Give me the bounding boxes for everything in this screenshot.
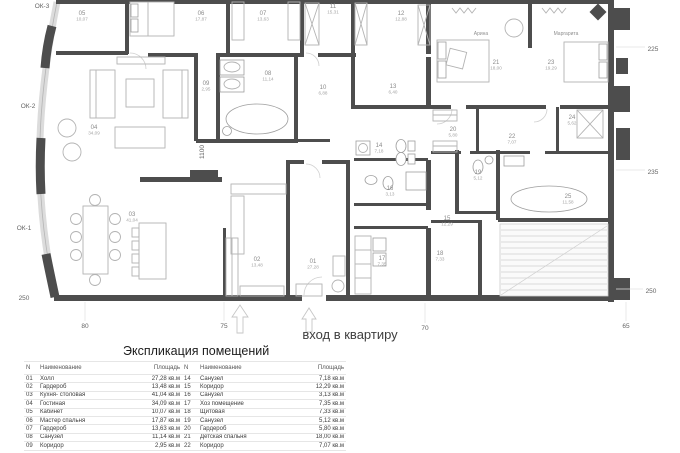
schedule-cell: Гардероб: [38, 383, 126, 391]
schedule-cell: 34,09 кв.м: [126, 400, 182, 408]
room-area-02: 13,48: [251, 263, 263, 268]
table-row: 07Гардероб13,63 кв.м20Гардероб5,80 кв.м: [24, 425, 346, 433]
schedule-cell: Детская спальня: [198, 433, 290, 441]
schedule-cell: 17: [182, 400, 198, 408]
schedule-cell: 2,95 кв.м: [126, 442, 182, 450]
table-row: 09Коридор2,95 кв.м22Коридор7,07 кв.м: [24, 442, 346, 450]
schedule-cell: Мастер спальня: [38, 416, 126, 424]
schedule-title: Экспликация помещений: [123, 344, 269, 358]
dim-label-11: 1100: [199, 145, 206, 159]
schedule-header-3: N: [182, 362, 198, 375]
dim-label-3: 250: [19, 295, 30, 302]
schedule-cell: 7,07 кв.м: [290, 442, 346, 450]
room-schedule: NНаименованиеПлощадьNНаименованиеПлощадь…: [24, 361, 346, 453]
room-area-24: 5,62: [568, 121, 577, 126]
schedule-cell: 20: [182, 425, 198, 433]
schedule-header-5: Площадь: [290, 362, 346, 375]
room-area-19: 5,12: [474, 176, 483, 181]
floor-plan: вход в квартиру 0510,070617,870713,63111…: [0, 0, 680, 345]
schedule-cell: 7,18 кв.м: [290, 375, 346, 383]
room-area-04: 34,09: [88, 131, 100, 136]
table-row: 03Кухня- столовая41,04 кв.м16Санузел3,13…: [24, 391, 346, 399]
room-area-01: 27,28: [307, 265, 319, 270]
room-area-12: 12,88: [395, 17, 407, 22]
schedule-table: NНаименованиеПлощадьNНаименованиеПлощадь…: [24, 361, 346, 451]
entrance-label: вход в квартиру: [302, 327, 398, 342]
table-row: 05Кабинет10,07 кв.м18Щитовая7,33 кв.м: [24, 408, 346, 416]
room-area-03: 41,04: [126, 218, 138, 223]
room-area-21: 18,00: [490, 66, 502, 71]
dim-label-9: 70: [421, 325, 429, 332]
schedule-cell: 21: [182, 433, 198, 441]
bedroom-name-1: Маргарита: [554, 31, 579, 37]
room-area-10: 6,88: [319, 91, 328, 96]
schedule-cell: 7,35 кв.м: [290, 400, 346, 408]
schedule-cell: 18: [182, 408, 198, 416]
room-area-23: 19,29: [545, 66, 557, 71]
schedule-cell: 17,87 кв.м: [126, 416, 182, 424]
room-area-15: 12,29: [441, 222, 453, 227]
schedule-header-1: Наименование: [38, 362, 126, 375]
schedule-cell: 10,07 кв.м: [126, 408, 182, 416]
room-area-08: 11,14: [262, 77, 274, 82]
schedule-cell: 02: [24, 383, 38, 391]
room-area-05: 10,07: [76, 17, 88, 22]
furniture: [58, 2, 608, 296]
room-area-17: 7,35: [378, 262, 387, 267]
schedule-cell: 41,04 кв.м: [126, 391, 182, 399]
schedule-header-row: NНаименованиеПлощадьNНаименованиеПлощадь: [24, 362, 346, 375]
schedule-cell: 08: [24, 433, 38, 441]
bedroom-name-0: Арина: [474, 31, 489, 37]
dim-label-2: ОК-1: [17, 225, 32, 232]
schedule-cell: 12,29 кв.м: [290, 383, 346, 391]
schedule-cell: Гостиная: [38, 400, 126, 408]
schedule-cell: 14: [182, 375, 198, 383]
dim-label-0: ОК-3: [35, 3, 50, 10]
table-row: 01Холл27,28 кв.м14Санузел7,18 кв.м: [24, 375, 346, 383]
schedule-cell: 13,63 кв.м: [126, 425, 182, 433]
schedule-cell: Санузел: [38, 433, 126, 441]
schedule-cell: Коридор: [38, 442, 126, 450]
room-area-22: 7,07: [508, 140, 517, 145]
schedule-cell: 7,33 кв.м: [290, 408, 346, 416]
schedule-cell: Коридор: [198, 442, 290, 450]
table-row: 04Гостиная34,09 кв.м17Хоз помещение7,35 …: [24, 400, 346, 408]
schedule-cell: 15: [182, 383, 198, 391]
schedule-cell: 5,12 кв.м: [290, 416, 346, 424]
schedule-header-0: N: [24, 362, 38, 375]
room-area-07: 13,63: [257, 17, 269, 22]
schedule-cell: Санузел: [198, 375, 290, 383]
schedule-cell: Коридор: [198, 383, 290, 391]
schedule-cell: Санузел: [198, 416, 290, 424]
dim-label-4: 225: [648, 46, 659, 53]
dim-label-6: 250: [646, 288, 657, 295]
room-area-06: 17,87: [195, 17, 207, 22]
schedule-header-2: Площадь: [126, 362, 182, 375]
dim-label-1: ОК-2: [21, 103, 36, 110]
schedule-cell: 05: [24, 408, 38, 416]
schedule-cell: Холл: [38, 375, 126, 383]
schedule-cell: 18,00 кв.м: [290, 433, 346, 441]
floorplan-document: вход в квартиру 0510,070617,870713,63111…: [0, 0, 680, 453]
room-area-13: 6,40: [389, 90, 398, 95]
schedule-cell: Гардероб: [38, 425, 126, 433]
schedule-cell: 07: [24, 425, 38, 433]
schedule-cell: 13,48 кв.м: [126, 383, 182, 391]
schedule-cell: 11,14 кв.м: [126, 433, 182, 441]
bedroom-name-labels: АринаМаргарита: [474, 31, 579, 37]
schedule-cell: 09: [24, 442, 38, 450]
schedule-cell: Кухня- столовая: [38, 391, 126, 399]
schedule-cell: 04: [24, 400, 38, 408]
room-area-25: 11,58: [562, 200, 574, 205]
schedule-cell: 22: [182, 442, 198, 450]
dim-label-10: 65: [622, 323, 630, 330]
schedule-cell: 3,13 кв.м: [290, 391, 346, 399]
room-area-09: 2,95: [202, 87, 211, 92]
schedule-cell: Кабинет: [38, 408, 126, 416]
schedule-cell: 16: [182, 391, 198, 399]
schedule-cell: 5,80 кв.м: [290, 425, 346, 433]
schedule-cell: 03: [24, 391, 38, 399]
table-row: 06Мастер спальня17,87 кв.м19Санузел5,12 …: [24, 416, 346, 424]
schedule-cell: 06: [24, 416, 38, 424]
room-area-18: 7,33: [436, 257, 445, 262]
table-row: 02Гардероб13,48 кв.м15Коридор12,29 кв.м: [24, 383, 346, 391]
schedule-cell: 27,28 кв.м: [126, 375, 182, 383]
facade-glazing: [40, 2, 57, 297]
schedule-cell: 19: [182, 416, 198, 424]
schedule-cell: 01: [24, 375, 38, 383]
schedule-cell: Гардероб: [198, 425, 290, 433]
schedule-cell: Хоз помещение: [198, 400, 290, 408]
dim-label-5: 235: [648, 169, 659, 176]
schedule-header-4: Наименование: [198, 362, 290, 375]
room-area-16: 3,13: [386, 192, 395, 197]
room-area-14: 7,18: [375, 149, 384, 154]
room-area-20: 5,80: [449, 133, 458, 138]
dim-label-7: 80: [81, 323, 89, 330]
room-area-11: 15,31: [327, 10, 339, 15]
schedule-cell: Санузел: [198, 391, 290, 399]
table-row: 08Санузел11,14 кв.м21Детская спальня18,0…: [24, 433, 346, 441]
schedule-cell: Щитовая: [198, 408, 290, 416]
dim-label-8: 75: [220, 323, 228, 330]
